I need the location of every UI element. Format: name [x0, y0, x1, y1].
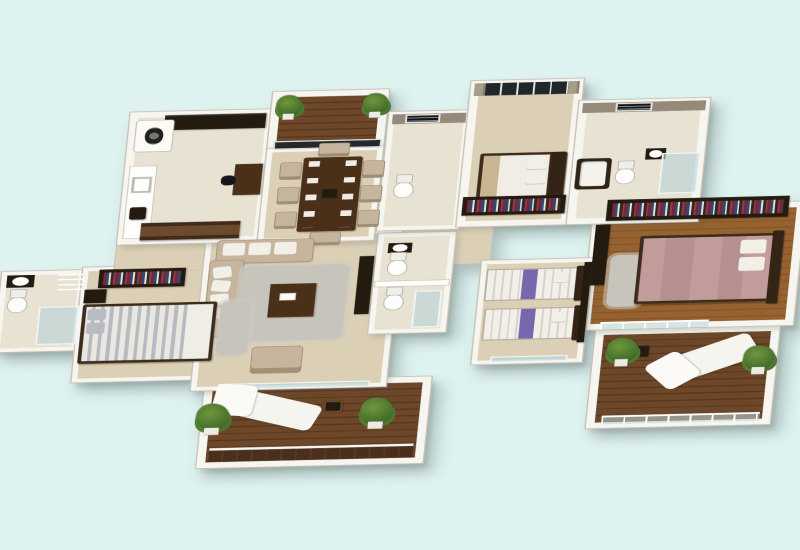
- floor-plan-render: [0, 0, 800, 550]
- sofa-cushion: [222, 243, 245, 256]
- washing-machine: [134, 120, 174, 152]
- kitchen-cabinet: [139, 221, 240, 241]
- nightstand: [83, 289, 106, 303]
- side-table: [323, 401, 343, 413]
- books: [466, 198, 561, 213]
- washbasin: [6, 275, 35, 288]
- sofa-cushion: [274, 242, 297, 255]
- books: [103, 271, 182, 285]
- sofa-pillow: [210, 280, 231, 292]
- apartment-plan: [0, 68, 800, 482]
- bedroom-window-wall: [474, 81, 580, 96]
- room-bathroom-2: [377, 110, 470, 230]
- kitchen-sink: [132, 177, 152, 192]
- louver-window-icon: [615, 102, 653, 112]
- pillow: [86, 323, 106, 335]
- dining-chair: [310, 232, 341, 245]
- armchair: [250, 346, 302, 373]
- window-panes: [485, 81, 569, 95]
- coffee-maker: [129, 207, 147, 220]
- towel-ladder: [57, 274, 83, 292]
- study-desk: [232, 164, 263, 196]
- sofa-cushion: [248, 242, 271, 255]
- pillow: [87, 309, 107, 321]
- coffee-table: [267, 283, 316, 317]
- table-tray: [280, 293, 295, 300]
- purple-runner: [518, 309, 536, 339]
- utility-countertop: [164, 113, 267, 130]
- dining-chair: [280, 163, 302, 180]
- shower-enclosure: [658, 152, 701, 194]
- pillow: [553, 272, 569, 282]
- pillow: [527, 157, 548, 169]
- pillow: [740, 239, 767, 253]
- bathtub: [574, 158, 612, 190]
- sofa-pillow: [213, 266, 233, 279]
- dining-chair: [360, 185, 382, 202]
- washbasin: [388, 243, 413, 253]
- curtain: [568, 81, 580, 94]
- louver-window-icon: [405, 114, 441, 123]
- dining-chair: [319, 143, 350, 156]
- pillow: [525, 172, 546, 184]
- shower-enclosure: [35, 306, 79, 345]
- pillow: [738, 257, 765, 271]
- dining-chair: [363, 161, 385, 178]
- dining-chair: [357, 210, 379, 227]
- purple-runner: [520, 269, 538, 299]
- pillow: [551, 312, 567, 322]
- centerpiece: [322, 189, 338, 198]
- dining-chair: [277, 187, 299, 204]
- dining-chair: [275, 212, 297, 229]
- area-rug: [215, 301, 252, 356]
- shower-enclosure: [411, 290, 442, 328]
